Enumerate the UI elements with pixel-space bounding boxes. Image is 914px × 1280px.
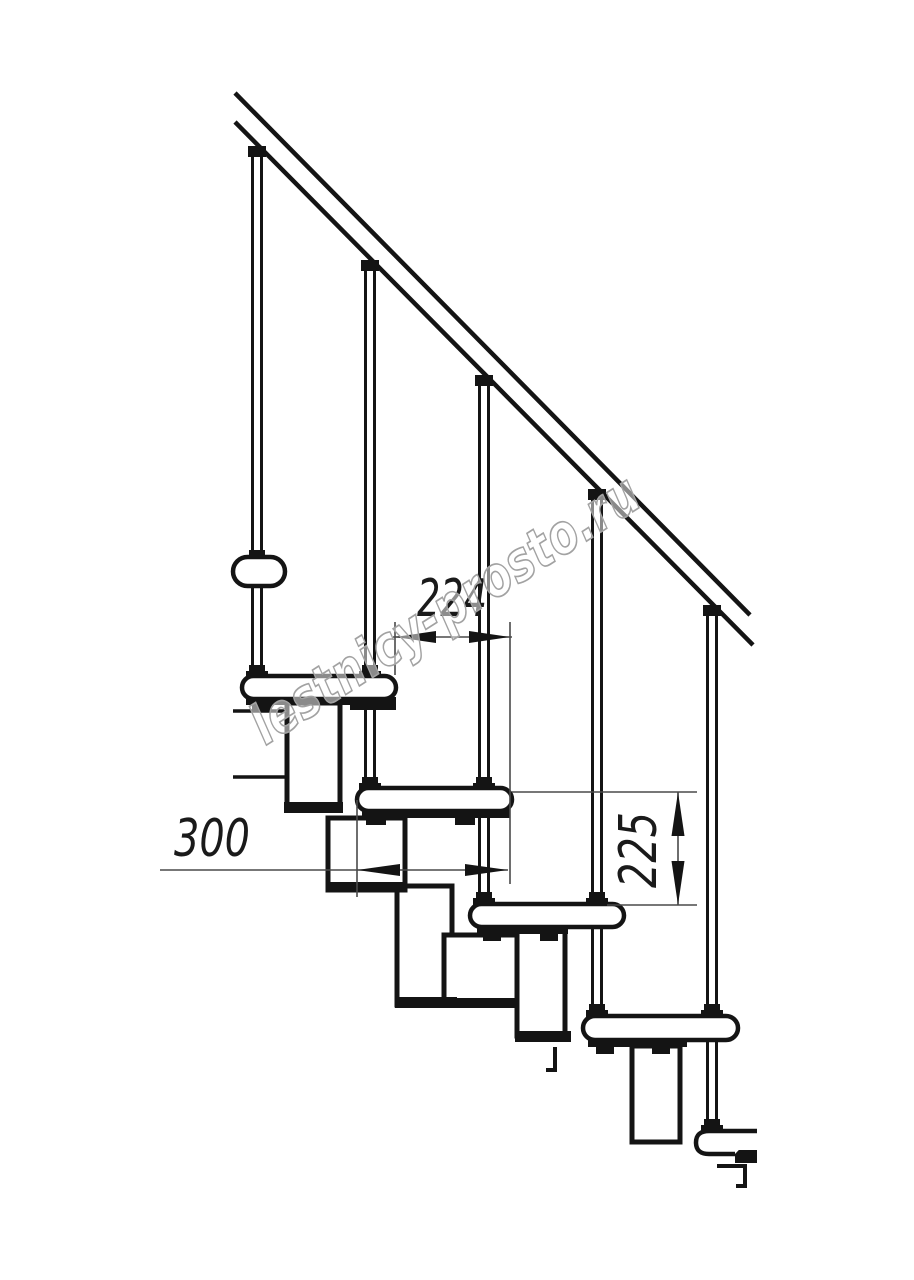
stringer-modules (284, 703, 747, 1186)
baluster-4 (593, 491, 602, 1017)
staircase-drawing: 224 300 225 lestnicy-prosto.ru (0, 0, 914, 1280)
baluster-2 (366, 262, 375, 790)
baluster-5 (708, 606, 717, 1131)
staircase-drawing-canvas: 224 300 225 lestnicy-prosto.ru (0, 0, 914, 1280)
handrail-bracket (233, 550, 285, 586)
tread-3 (470, 904, 624, 927)
baluster-1 (253, 150, 262, 677)
dimension-300-label: 300 (174, 809, 250, 869)
tread-2 (357, 788, 512, 811)
dimension-225-label: 225 (609, 812, 669, 888)
tread-4 (583, 1016, 738, 1040)
dimension-225: 225 (512, 792, 697, 905)
watermark-text: lestnicy-prosto.ru (238, 461, 652, 757)
